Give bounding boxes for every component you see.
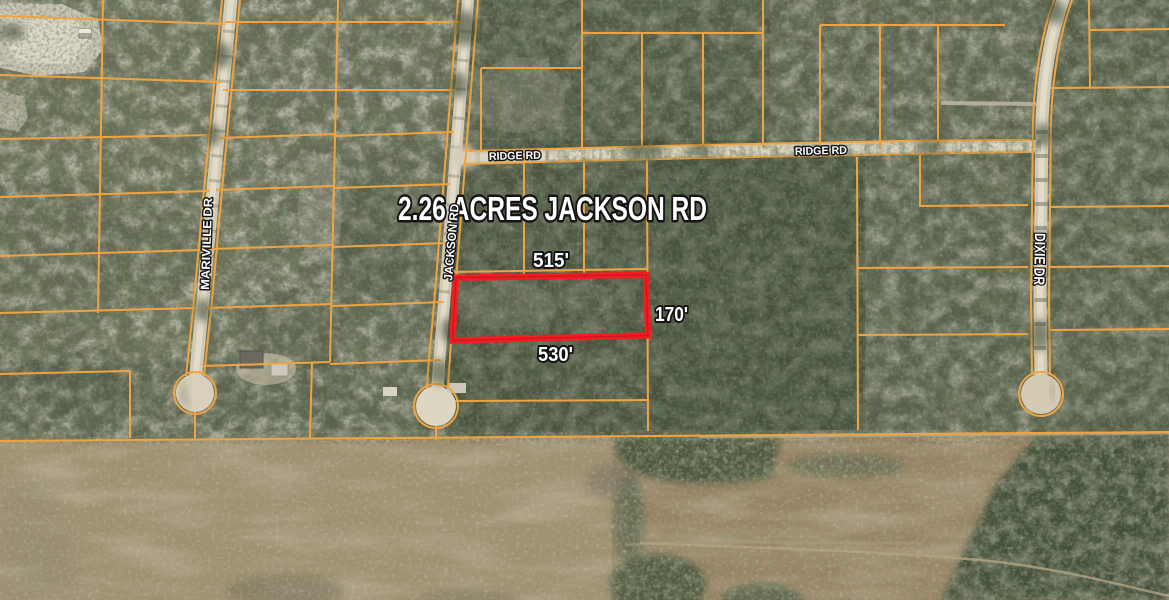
svg-text:2.26 ACRES JACKSON RD: 2.26 ACRES JACKSON RD (398, 190, 707, 227)
svg-text:530': 530' (538, 344, 573, 366)
svg-text:DIXIE DR: DIXIE DR (1030, 233, 1048, 285)
svg-text:RIDGE RD: RIDGE RD (489, 150, 541, 163)
svg-text:RIDGE RD: RIDGE RD (795, 145, 847, 158)
svg-text:170': 170' (655, 304, 688, 326)
svg-text:515': 515' (533, 250, 569, 272)
